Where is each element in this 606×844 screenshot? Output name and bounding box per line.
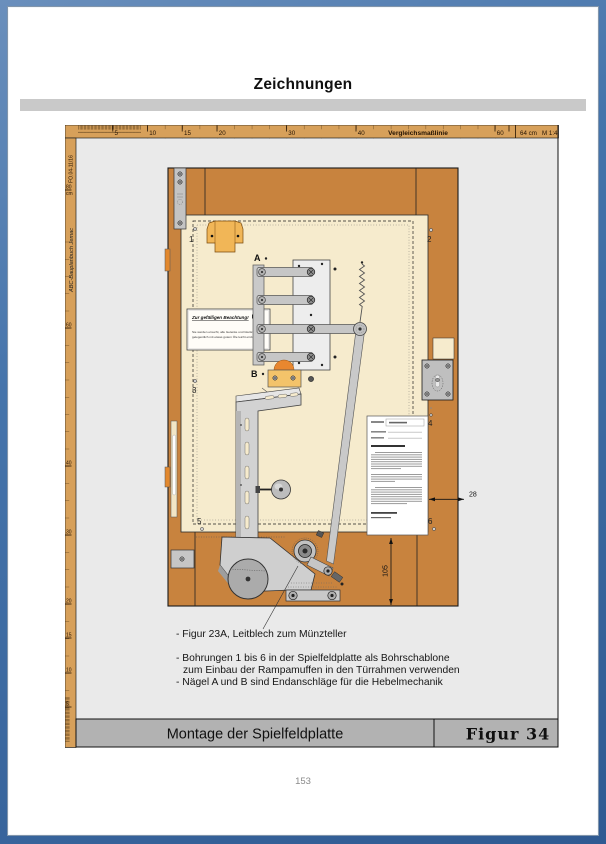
nail-label-a: A bbox=[254, 253, 261, 263]
hinge-strip bbox=[174, 168, 186, 229]
hinge bbox=[165, 249, 170, 271]
knob-mount bbox=[256, 486, 261, 493]
ruler-tick-label: 5 bbox=[66, 702, 69, 708]
brand-label: ABC-Bauplanbuch Jemac bbox=[69, 228, 75, 293]
ruler-tick-label: 60 bbox=[66, 323, 72, 329]
hole-label-2: 2 bbox=[427, 235, 432, 244]
ruler-tick-label: 80 bbox=[66, 185, 72, 191]
lock-plate bbox=[422, 360, 453, 400]
form-code-label: FO.04-11/16 bbox=[69, 155, 75, 183]
dim-width-label: 28 bbox=[469, 492, 477, 499]
page-number: 153 bbox=[8, 776, 598, 787]
ruler-tick-label: 10 bbox=[66, 668, 72, 674]
top-ruler: 5 10 15 20 30 40 60 Vergleichsmaßlinie 6… bbox=[65, 125, 559, 139]
ruler-tick-label: 5 bbox=[115, 130, 119, 137]
ruler-tick-label: 30 bbox=[288, 130, 295, 137]
hinge bbox=[165, 467, 170, 487]
ruler-scale-label: M 1:4 bbox=[542, 130, 558, 137]
ruler-length-label: 64 cm bbox=[520, 130, 537, 137]
door-frame-drawing: 1 2 3 4 5 6 Zur gefälligen Beachtung! bbox=[165, 168, 477, 629]
ruler-tick-label: 40 bbox=[358, 130, 365, 137]
figure-number-label: Figur 34 bbox=[466, 725, 551, 744]
form-card bbox=[367, 416, 428, 535]
annotation-figur23a: - Figur 23A, Leitblech zum Münzteller bbox=[176, 629, 347, 640]
annotation-bohrungen: - Bohrungen 1 bis 6 in der Spielfeldplat… bbox=[176, 653, 450, 664]
annotation-naegel: - Nägel A und B sind Endanschläge für di… bbox=[176, 677, 444, 688]
notice-title: Zur gefälligen Beachtung! bbox=[191, 315, 249, 320]
ruler-tick-label: 15 bbox=[66, 633, 72, 639]
document-page: Zeichnungen bbox=[7, 6, 599, 836]
comparison-line-label: Vergleichsmaßlinie bbox=[388, 130, 448, 137]
ruler-tick-label: 30 bbox=[66, 530, 72, 536]
sheet-footer: Montage der Spielfeldplatte Figur 34 bbox=[76, 719, 558, 747]
dim-height-label: 105 bbox=[383, 565, 390, 577]
drawing-sheet: 5 10 15 20 30 40 60 Vergleichsmaßlinie 6… bbox=[65, 125, 559, 748]
ruler-tick-label: 20 bbox=[66, 599, 72, 605]
page-title: Zeichnungen bbox=[8, 76, 598, 94]
ruler-tick-label: 20 bbox=[219, 130, 226, 137]
hole-label-5: 5 bbox=[197, 517, 202, 526]
notice-line: gelegentlich mit etwas gutem Öle leicht … bbox=[192, 335, 261, 339]
notice-line: Sie werden ersucht, alle Gelenke und Gle… bbox=[192, 330, 260, 334]
nail-label-b: B bbox=[251, 369, 258, 379]
ruler-tick-label: 40 bbox=[66, 461, 72, 467]
annotation-einbau: zum Einbau der Rampamuffen in den Türrah… bbox=[183, 665, 460, 676]
footer-title: Montage der Spielfeldplatte bbox=[167, 727, 344, 743]
ruler-unit-label: cm bbox=[66, 191, 73, 197]
ruler-tick-label: 60 bbox=[497, 130, 504, 137]
hole-label-4: 4 bbox=[428, 419, 433, 428]
ruler-tick-label: 10 bbox=[149, 130, 156, 137]
ruler-tick-label: 15 bbox=[184, 130, 191, 137]
window-frame: { "header": { "title": "Zeichnungen" }, … bbox=[0, 0, 606, 844]
hole-label-6: 6 bbox=[428, 517, 433, 526]
hole-label-3: 3 bbox=[192, 386, 197, 395]
title-underline-bar bbox=[20, 99, 586, 111]
hole-label-1: 1 bbox=[189, 235, 194, 244]
left-ruler: 80 cm 60 40 30 20 15 10 5 FO.04-11/16 AB… bbox=[65, 138, 76, 748]
